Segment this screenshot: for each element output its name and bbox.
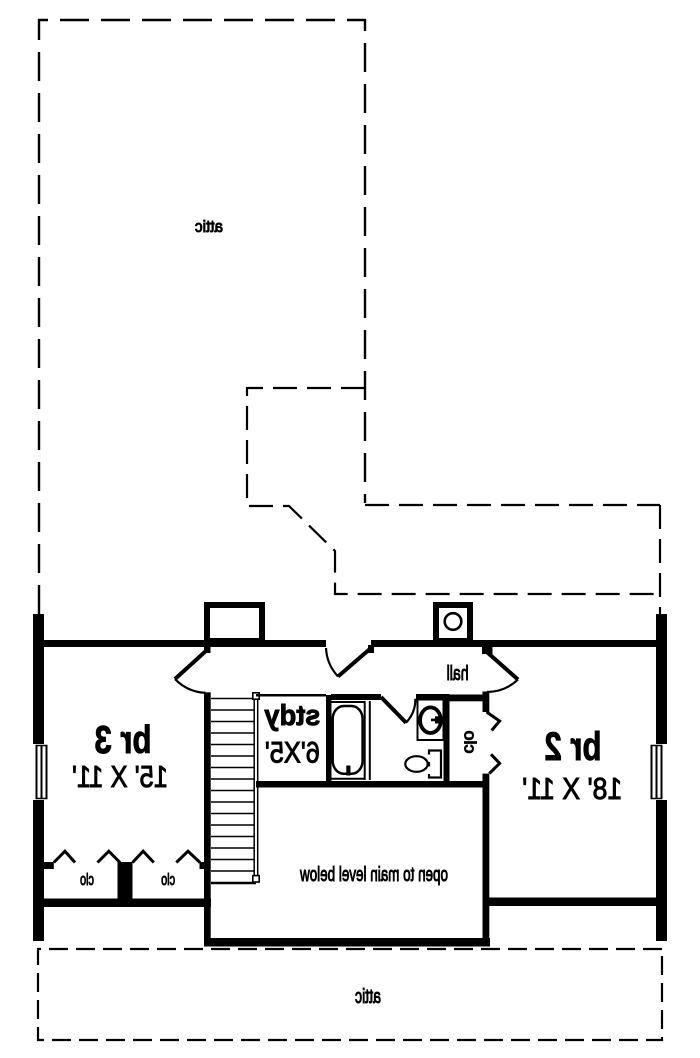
svg-text:attic: attic	[195, 217, 223, 236]
svg-text:18' X 11': 18' X 11'	[522, 771, 622, 806]
svg-text:15' X 11': 15' X 11'	[72, 759, 168, 794]
svg-text:attic: attic	[355, 986, 381, 1008]
svg-text:clo: clo	[461, 731, 480, 754]
svg-text:clo: clo	[161, 870, 175, 889]
svg-text:hall: hall	[447, 663, 469, 685]
svg-text:open to main level below: open to main level below	[300, 864, 448, 886]
svg-text:stdy: stdy	[264, 700, 320, 732]
svg-text:6'X5': 6'X5'	[265, 737, 320, 770]
svg-text:br 2: br 2	[545, 725, 602, 769]
svg-text:clo: clo	[80, 870, 94, 889]
svg-text:br 3: br 3	[95, 719, 152, 762]
